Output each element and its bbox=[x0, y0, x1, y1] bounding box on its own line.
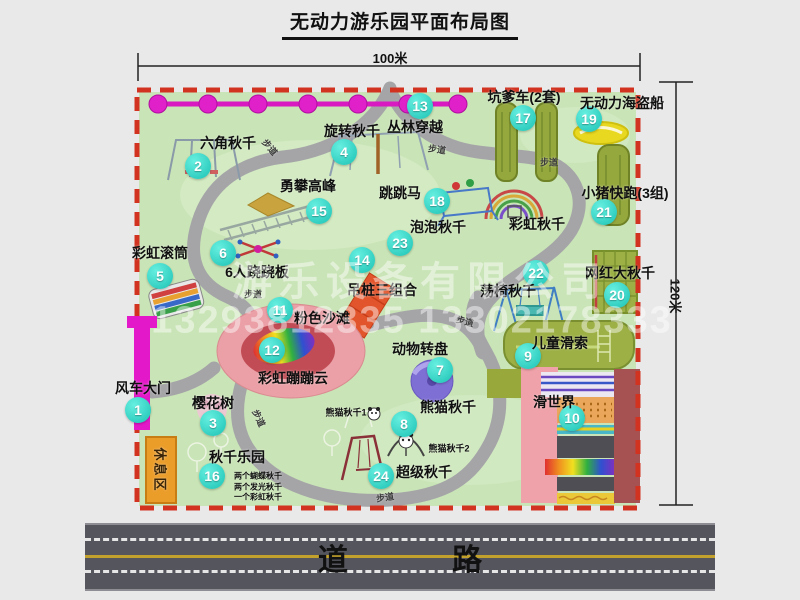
pig-run-icon bbox=[598, 145, 629, 225]
cherry-tree-icon bbox=[197, 394, 227, 424]
pirate-ship-icon bbox=[574, 122, 628, 144]
road: 道 路 bbox=[85, 523, 715, 591]
rest-area-box bbox=[146, 437, 176, 503]
watermark-company: 游乐设备有限公司 bbox=[232, 249, 608, 307]
watermark-phone: 13293812335 13302178333 bbox=[151, 300, 673, 343]
road-label: 道 路 bbox=[270, 535, 530, 579]
screenshot-root: 无动力游乐园平面布局图 100米 120米 bbox=[0, 0, 800, 600]
animal-turntable-icon bbox=[411, 360, 453, 402]
